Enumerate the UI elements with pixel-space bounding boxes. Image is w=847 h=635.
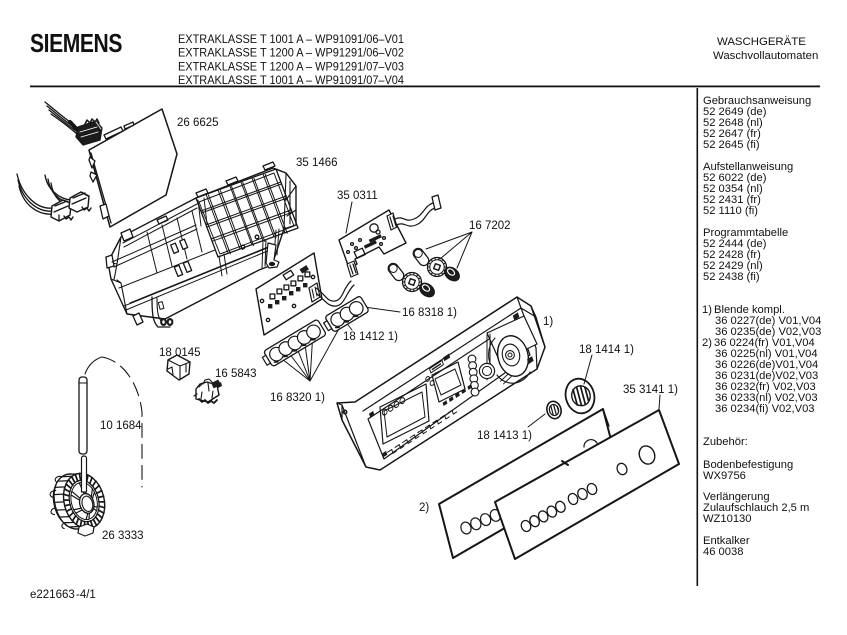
svg-text:EXTRAKLASSE T 1200 A – WP91291: EXTRAKLASSE T 1200 A – WP91291/06–V02 [178,46,404,60]
svg-text:WASCHGERÄTE: WASCHGERÄTE [717,36,806,48]
svg-text:16 8318 1): 16 8318 1) [402,307,457,319]
svg-text:EXTRAKLASSE T 1200 A – WP91291: EXTRAKLASSE T 1200 A – WP91291/07–V03 [178,59,404,73]
svg-text:16 8320 1): 16 8320 1) [270,392,325,404]
svg-text:16 7202: 16 7202 [469,220,511,232]
svg-text:WX9756: WX9756 [703,470,746,482]
svg-text:16 5843: 16 5843 [215,368,257,380]
svg-text:EXTRAKLASSE T 1001 A – WP91091: EXTRAKLASSE T 1001 A – WP91091/07–V04 [178,73,404,87]
svg-text:46 0038: 46 0038 [703,546,743,558]
svg-text:52 2438 (fi): 52 2438 (fi) [703,271,760,283]
svg-text:-4/1: -4/1 [76,589,96,601]
svg-text:26 6625: 26 6625 [177,117,219,129]
svg-text:52 2645 (fi): 52 2645 (fi) [703,139,760,151]
svg-text:18 1413 1): 18 1413 1) [477,430,532,442]
svg-text:SIEMENS: SIEMENS [30,28,122,58]
svg-text:1): 1) [543,316,553,328]
svg-text:35 3141 1): 35 3141 1) [623,384,678,396]
svg-text:35 1466: 35 1466 [296,157,338,169]
svg-text:2): 2) [419,502,429,514]
svg-text:26 3333: 26 3333 [102,530,144,542]
svg-text:e221663: e221663 [30,589,75,601]
svg-text:2): 2) [702,337,712,349]
svg-text:35 0311: 35 0311 [337,190,378,202]
svg-text:1): 1) [702,304,712,316]
svg-text:Waschvollautomaten: Waschvollautomaten [713,50,818,62]
svg-text:EXTRAKLASSE T 1001 A – WP91091: EXTRAKLASSE T 1001 A – WP91091/06–V01 [178,32,404,46]
svg-text:52 1110 (fi): 52 1110 (fi) [703,205,758,217]
svg-text:Zubehör:: Zubehör: [703,436,748,448]
svg-text:WZ10130: WZ10130 [703,513,752,525]
svg-text:36 0234(fi) V02,V03: 36 0234(fi) V02,V03 [715,403,815,415]
svg-text:18 1412 1): 18 1412 1) [343,331,398,343]
svg-text:18 1414 1): 18 1414 1) [579,344,634,356]
svg-text:10 1684: 10 1684 [100,420,142,432]
